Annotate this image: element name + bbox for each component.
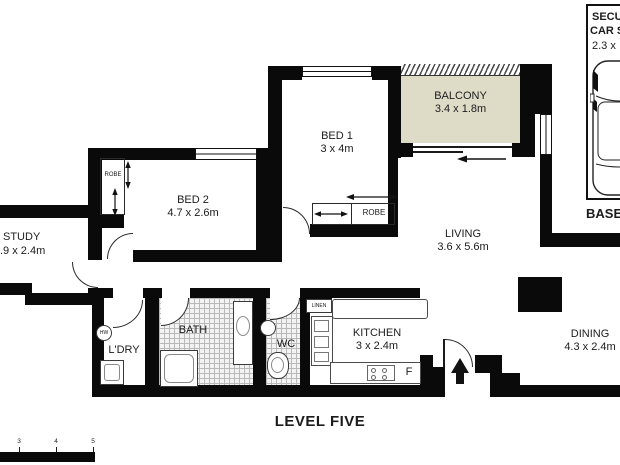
burner	[371, 375, 376, 380]
wall-segment	[253, 293, 266, 397]
bed1-label: BED 1 3 x 4m	[277, 130, 397, 156]
linen-name: LINEN	[312, 303, 327, 309]
wall-segment	[420, 355, 433, 397]
bed2-name: BED 2	[123, 194, 263, 207]
bed2-window	[195, 148, 257, 160]
wall-segment	[310, 224, 398, 237]
wall-segment	[552, 233, 620, 247]
bed2-robe: ROBE	[100, 158, 125, 215]
hot-water-label: HW	[100, 330, 108, 336]
wall-segment	[100, 214, 124, 228]
kitchen-bench-top	[332, 299, 428, 319]
scale-tick-label: 5	[88, 438, 98, 445]
bed2-label: BED 2 4.7 x 2.6m	[123, 194, 263, 220]
scale-tick-label: 4	[51, 438, 61, 445]
car-space-dims: 2.3 x	[592, 40, 616, 52]
car-space-line2: CAR S	[590, 25, 620, 37]
bed1-robe: ROBE	[312, 203, 395, 225]
washing-machine-inner	[104, 364, 120, 381]
toilet	[267, 352, 289, 379]
bed2-dims: 4.7 x 2.6m	[123, 207, 263, 220]
wall-segment	[540, 155, 552, 247]
linen-cupboard: LINEN	[306, 299, 332, 313]
wc-basin	[260, 320, 276, 336]
bed2-robe-label: ROBE	[102, 172, 124, 178]
kitchen-label: KITCHEN 3 x 2.4m	[327, 327, 427, 353]
bed1-name: BED 1	[277, 130, 397, 143]
kitchen-drawer	[314, 352, 329, 362]
study-name: STUDY	[3, 231, 63, 244]
bath-vanity	[233, 301, 253, 365]
wall-segment	[512, 143, 533, 157]
hot-water-unit: HW	[96, 325, 112, 341]
floor-plan: BALCONY 3.4 x 1.8m BED 1 3 x 4m BED 2 4.…	[0, 0, 620, 465]
fridge-label: F	[398, 366, 420, 378]
car-space-line1: SECU	[592, 11, 620, 23]
sliding-door-panel	[413, 151, 463, 153]
living-window	[540, 114, 552, 155]
scale-bar: 3 4 5	[0, 436, 110, 464]
dining-name: DINING	[540, 328, 620, 341]
balcony-label: BALCONY 3.4 x 1.8m	[401, 90, 520, 116]
toilet-bowl	[271, 357, 284, 373]
scale-bar-rule	[0, 452, 95, 462]
study-dims: .9 x 2.4m	[0, 245, 70, 258]
level-caption: LEVEL FIVE	[220, 413, 420, 430]
basement-caption: BASE	[586, 206, 620, 221]
robe-divider	[351, 204, 352, 224]
wall-segment	[92, 385, 433, 397]
washing-machine	[100, 360, 124, 385]
bath-basin	[236, 316, 250, 336]
balcony-dims: 3.4 x 1.8m	[401, 103, 520, 116]
wall-segment	[133, 250, 260, 262]
bath-name: BATH	[165, 324, 221, 337]
dining-label: DINING 4.3 x 2.4m	[540, 328, 620, 354]
bathtub	[160, 350, 198, 387]
wall-segment	[535, 64, 552, 114]
bed1-window	[302, 66, 372, 77]
living-name: LIVING	[403, 228, 523, 241]
burner	[371, 368, 376, 373]
wall-segment	[143, 288, 162, 298]
bed1-robe-label: ROBE	[353, 208, 395, 217]
car-space-box: SECU CAR S 2.3 x	[586, 4, 620, 200]
balcony-name: BALCONY	[401, 90, 520, 103]
laundry-name: L'DRY	[100, 344, 148, 357]
wall-segment	[433, 367, 445, 397]
wc-name: WC	[266, 338, 306, 351]
kitchen-bench-left	[311, 316, 333, 366]
cooktop	[367, 365, 395, 381]
burner	[382, 375, 387, 380]
dining-dims: 4.3 x 2.4m	[540, 341, 620, 354]
wall-segment	[0, 205, 88, 218]
balcony-balustrade-hatch	[401, 64, 520, 76]
car-icon	[590, 58, 620, 198]
bathtub-inner	[164, 354, 194, 383]
entry-door-leaf	[443, 339, 445, 367]
sliding-door-track	[413, 146, 512, 148]
kitchen-name: KITCHEN	[327, 327, 427, 340]
kitchen-appliance	[314, 336, 329, 348]
living-label: LIVING 3.6 x 5.6m	[403, 228, 523, 254]
wall-segment	[518, 277, 562, 312]
bed1-dims: 3 x 4m	[277, 143, 397, 156]
wall-segment	[398, 143, 413, 157]
kitchen-dims: 3 x 2.4m	[327, 340, 427, 353]
kitchen-sink	[314, 320, 329, 332]
wall-segment	[503, 385, 620, 397]
scale-tick-label: 3	[14, 438, 24, 445]
living-dims: 3.6 x 5.6m	[403, 241, 523, 254]
burner	[382, 368, 387, 373]
wall-segment	[475, 355, 502, 373]
